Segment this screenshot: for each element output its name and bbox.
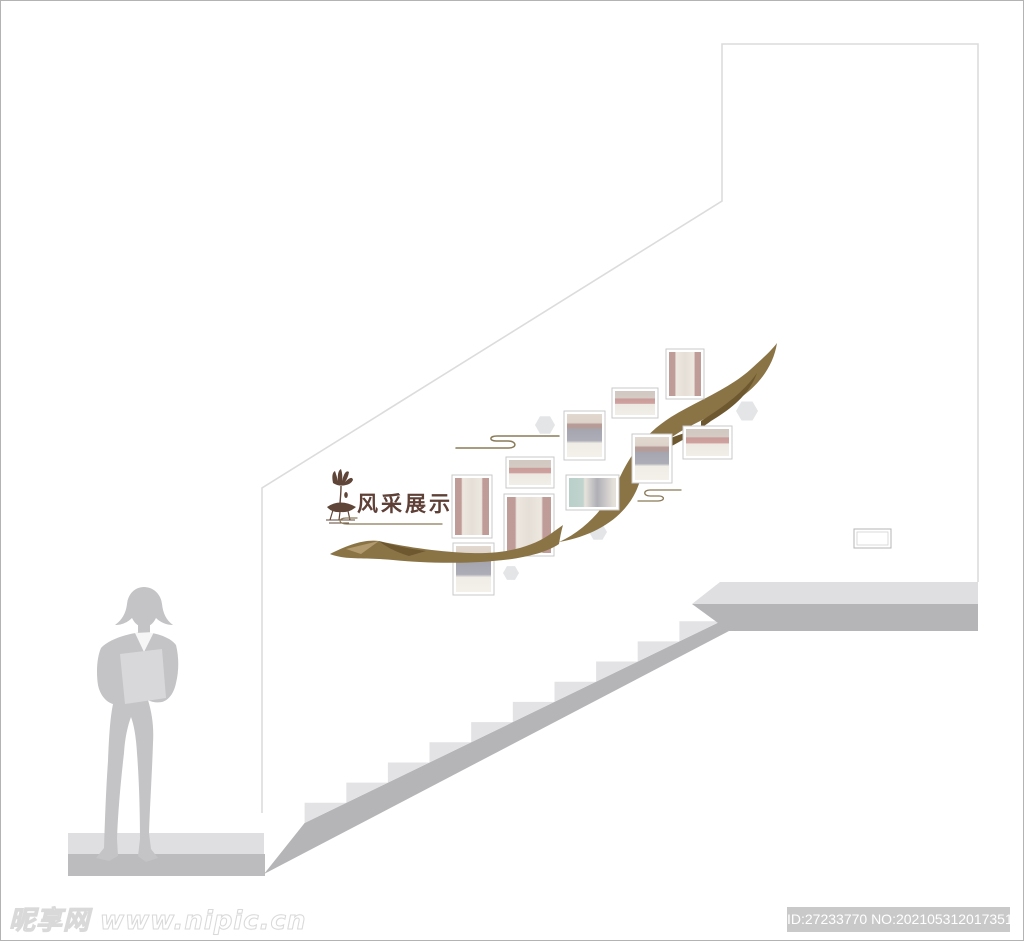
cloud-motif-right bbox=[638, 490, 681, 501]
woman-folder bbox=[120, 649, 166, 704]
cloud-motif-left bbox=[456, 436, 559, 448]
lotus-bud bbox=[344, 492, 348, 498]
photo-frame bbox=[612, 388, 658, 418]
photo-frame bbox=[683, 426, 732, 459]
heading-underline-cloud bbox=[340, 518, 442, 524]
woman-hair-head bbox=[115, 587, 173, 627]
stock-id-label: ID:27233770 NO:20210531201735188128 bbox=[787, 907, 1010, 932]
stair-steps bbox=[263, 601, 721, 823]
hexagon-icon bbox=[503, 566, 519, 580]
photo-frame bbox=[566, 475, 619, 510]
floor-top-surface bbox=[68, 833, 264, 854]
wall-heading: 风采展示 bbox=[357, 488, 497, 518]
landing-front-face bbox=[692, 604, 978, 631]
wall-outline bbox=[262, 44, 978, 813]
hexagon-icon bbox=[535, 416, 555, 433]
lotus-flower bbox=[332, 469, 353, 486]
photo-frame bbox=[564, 411, 605, 460]
lotus-stem bbox=[340, 486, 341, 505]
lotus-icon bbox=[326, 469, 356, 523]
landing-top-surface bbox=[692, 582, 978, 604]
site-watermark: 昵享网 www.nipic.cn bbox=[9, 900, 306, 937]
stairwell-scene bbox=[1, 1, 1023, 940]
photo-frame bbox=[453, 543, 494, 595]
design-canvas: 风采展示 昵享网 www.nipic.cn ID:27233770 NO:202… bbox=[0, 0, 1024, 941]
lotus-leaf bbox=[327, 503, 356, 513]
woman-silhouette bbox=[96, 587, 178, 862]
stair-stringer bbox=[264, 621, 729, 874]
switch-plate bbox=[854, 529, 891, 548]
photo-frame bbox=[506, 457, 554, 488]
hexagon-icon bbox=[736, 402, 758, 421]
photo-frame bbox=[666, 349, 704, 399]
photo-frame bbox=[632, 434, 672, 483]
